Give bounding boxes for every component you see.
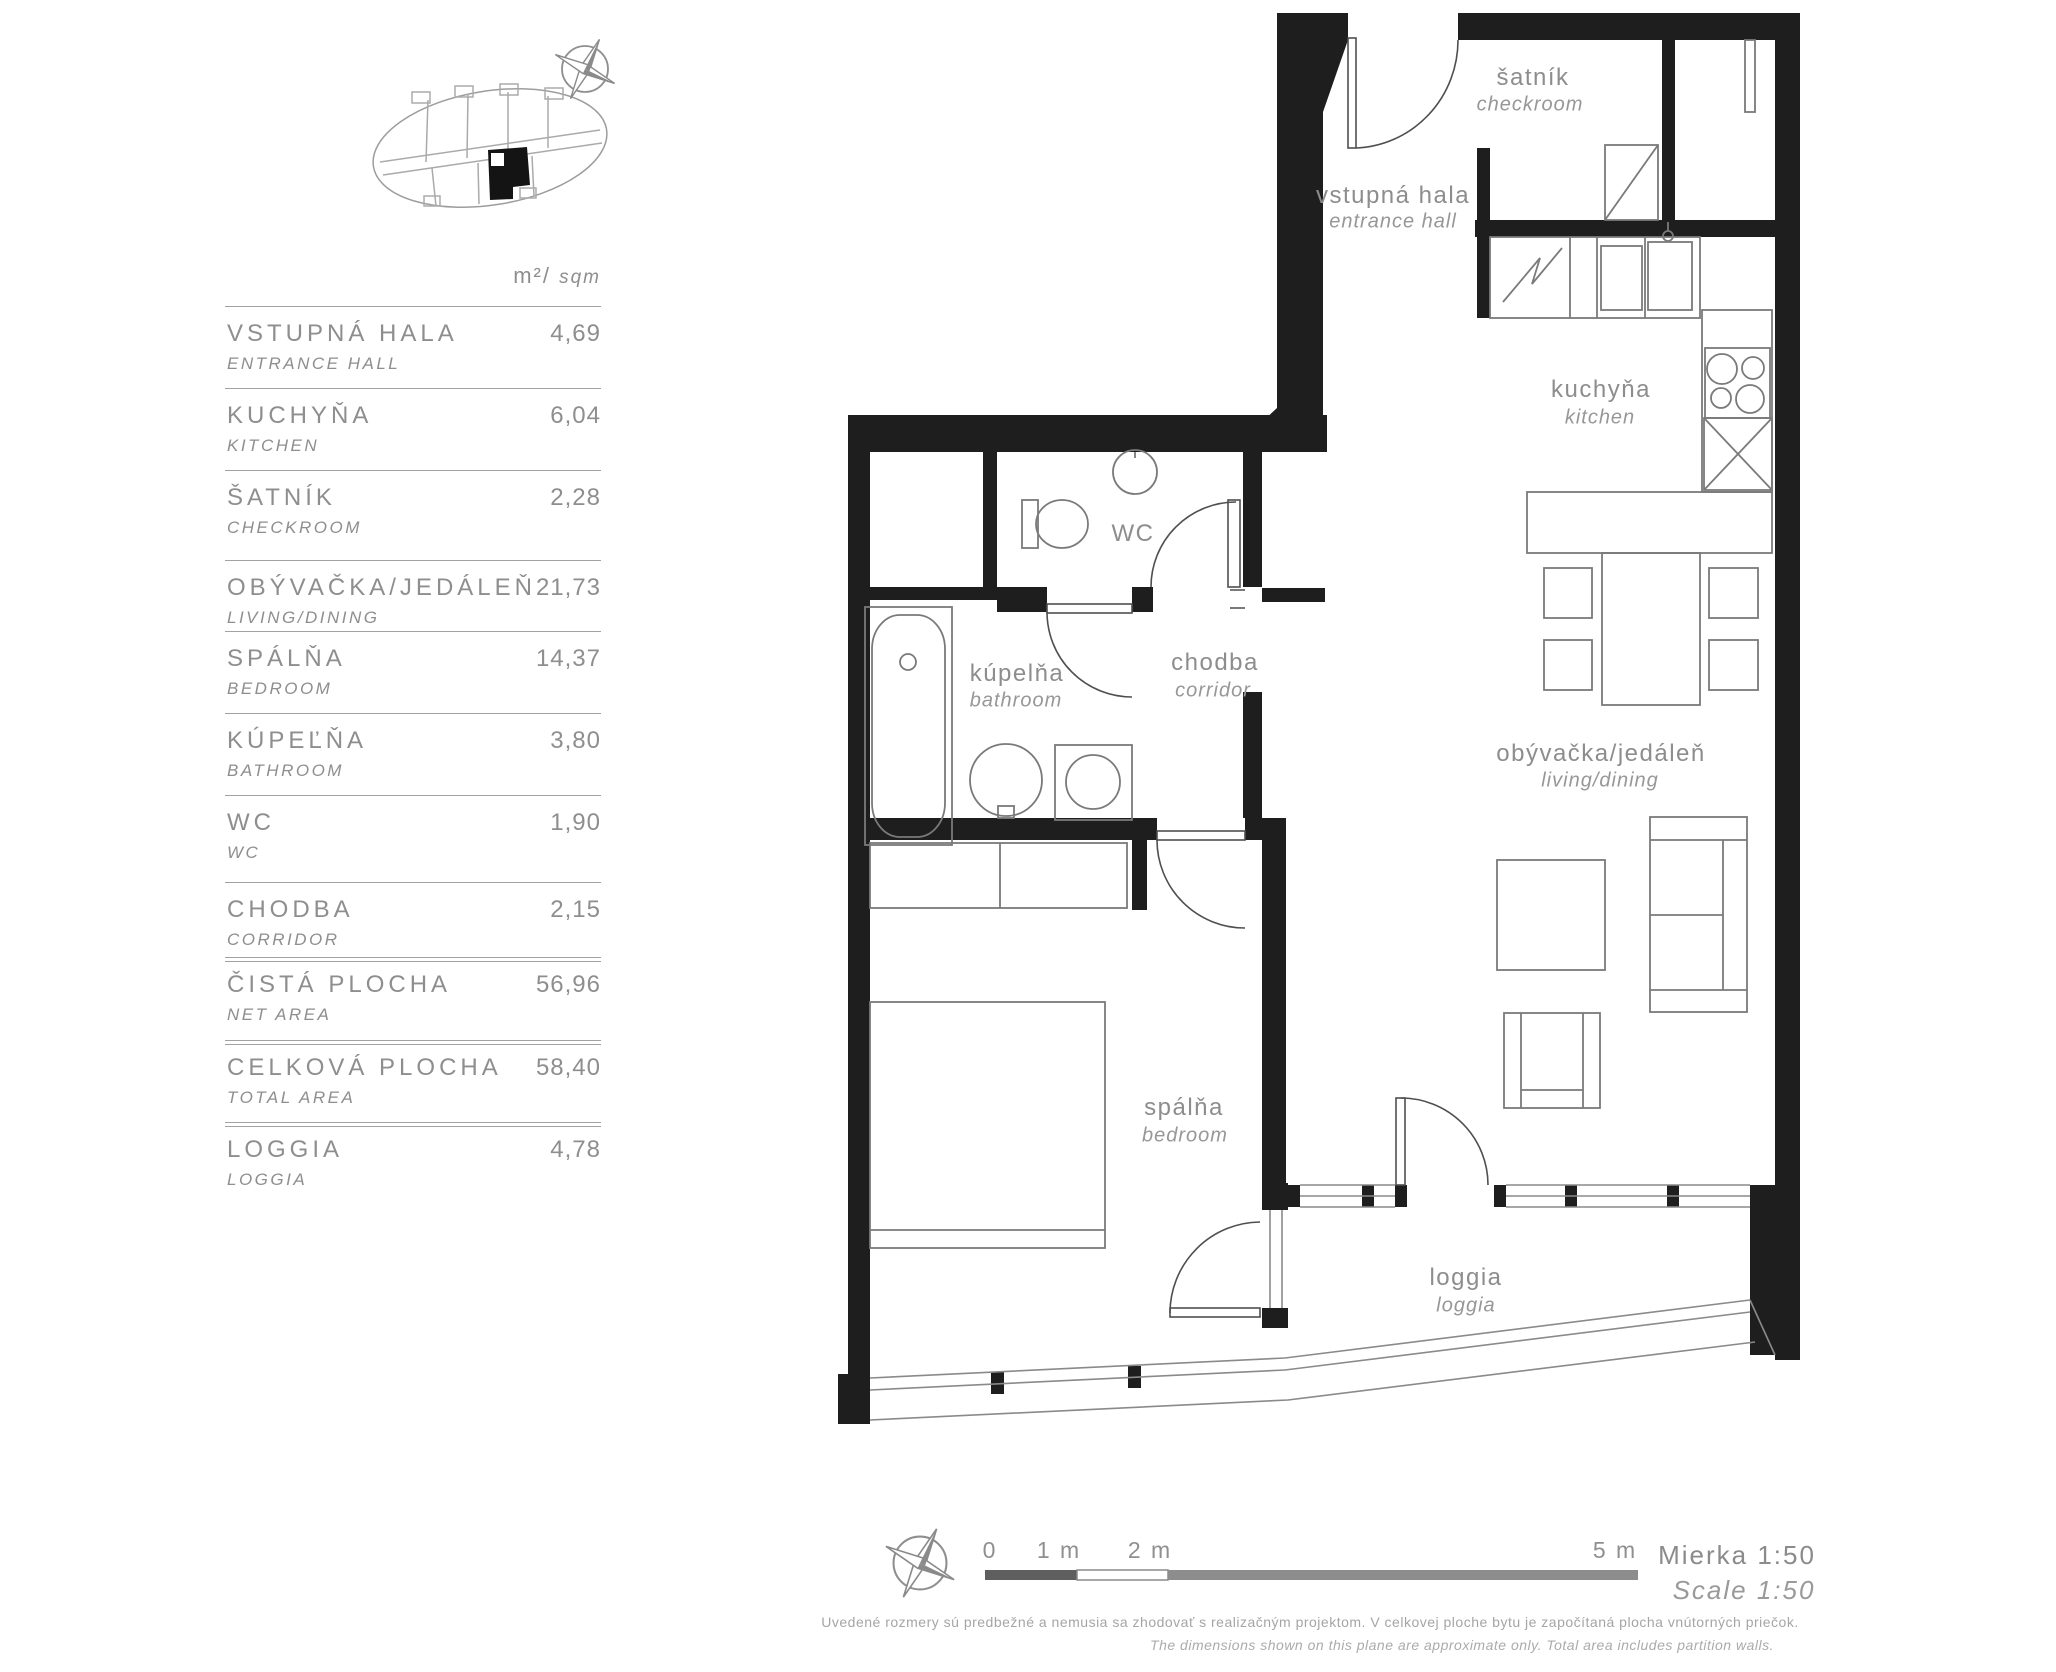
- room-label-loggia: loggia: [1429, 1264, 1502, 1292]
- bed: [870, 1002, 1105, 1248]
- scale-tick-5m: 5 m: [1593, 1537, 1637, 1564]
- legend-row-spalna: SPÁLŇA 14,37 BEDROOM: [225, 631, 601, 713]
- row-subtitle: CORRIDOR: [227, 930, 340, 950]
- bedroom-wardrobe: [870, 843, 1127, 908]
- wc-door-swing: [1151, 502, 1236, 587]
- row-value: 4,78: [550, 1136, 601, 1164]
- dining-table: [1602, 553, 1700, 705]
- row-title: SPÁLŇA: [227, 645, 346, 673]
- row-title: WC: [227, 809, 275, 837]
- row-value: 58,40: [536, 1054, 601, 1082]
- row-subtitle: CHECKROOM: [227, 518, 362, 538]
- bedroom-door-leaf: [1157, 831, 1245, 840]
- legend-row-cista-plocha: ČISTÁ PLOCHA 56,96 NET AREA: [225, 957, 601, 1040]
- fridge-symbol: [1503, 248, 1562, 302]
- key-plan: [365, 73, 616, 223]
- scale-label-en: Scale 1:50: [1673, 1575, 1816, 1606]
- room-label-kupelna: kúpelňa: [970, 660, 1065, 688]
- kitchen-counter: [1490, 237, 1700, 318]
- room-label-chodba: chodba: [1171, 649, 1259, 677]
- bedroom-loggia-door-swing: [1170, 1222, 1260, 1313]
- floorplan-page: m²/ sqm VSTUPNÁ HALA 4,69 ENTRANCE HALL …: [0, 0, 2056, 1672]
- room-sublabel-loggia: loggia: [1436, 1295, 1495, 1318]
- legend-row-kuchyna: KUCHYŇA 6,04 KITCHEN: [225, 388, 601, 470]
- coffee-table: [1497, 860, 1605, 970]
- row-subtitle: WC: [227, 843, 260, 863]
- windows: [870, 1185, 1775, 1420]
- legend-unit-header: m²/ sqm: [513, 263, 601, 289]
- row-value: 2,15: [550, 896, 601, 924]
- row-subtitle: BATHROOM: [227, 761, 344, 781]
- unit-m2: m²/: [513, 263, 551, 288]
- chair: [1544, 640, 1592, 690]
- kitchen-cabinet: [1601, 246, 1642, 310]
- legend-row-chodba: CHODBA 2,15 CORRIDOR: [225, 882, 601, 957]
- entrance-door-swing: [1356, 40, 1458, 148]
- chair: [1544, 568, 1592, 618]
- duct: [1745, 40, 1755, 112]
- living-loggia-door-swing: [1401, 1098, 1488, 1185]
- row-title: KÚPEĽŇA: [227, 727, 367, 755]
- row-value: 21,73: [536, 574, 601, 602]
- row-title: OBÝVAČKA/JEDÁLEŇ: [227, 574, 536, 602]
- toilet-bowl: [1036, 500, 1088, 548]
- row-title: ČISTÁ PLOCHA: [227, 971, 451, 999]
- wc-door-leaf: [1228, 500, 1240, 587]
- row-value: 1,90: [550, 809, 601, 837]
- legend-row-kupelna: KÚPEĽŇA 3,80 BATHROOM: [225, 713, 601, 795]
- legend-row-vstupna-hala: VSTUPNÁ HALA 4,69 ENTRANCE HALL: [225, 306, 601, 388]
- row-subtitle: LIVING/DINING: [227, 608, 379, 628]
- room-sublabel-spalna: bedroom: [1142, 1125, 1228, 1148]
- row-title: ŠATNÍK: [227, 484, 336, 512]
- disclaimer-en: The dimensions shown on this plane are a…: [1150, 1637, 1774, 1653]
- legend-row-celkova-plocha: CELKOVÁ PLOCHA 58,40 TOTAL AREA: [225, 1040, 601, 1122]
- scale-bar-graphic: [985, 1570, 1638, 1580]
- room-sublabel-kuchyna: kitchen: [1565, 407, 1635, 430]
- row-title: LOGGIA: [227, 1136, 343, 1164]
- room-label-vstupna-hala: vstupná hala: [1316, 182, 1470, 210]
- bathtub: [865, 607, 952, 845]
- scale-tick-0: 0: [983, 1537, 998, 1564]
- room-sublabel-obyvacka: living/dining: [1541, 770, 1659, 793]
- bathroom-door-leaf: [1047, 604, 1132, 613]
- room-label-kuchyna: kuchyňa: [1551, 376, 1651, 404]
- row-title: CELKOVÁ PLOCHA: [227, 1054, 502, 1082]
- room-label-satnik: šatník: [1496, 64, 1569, 92]
- room-sublabel-vstupna-hala: entrance hall: [1329, 211, 1457, 234]
- bedroom-loggia-door-leaf: [1170, 1308, 1260, 1317]
- row-value: 3,80: [550, 727, 601, 755]
- scale-tick-2m: 2 m: [1128, 1537, 1172, 1564]
- row-title: KUCHYŇA: [227, 402, 372, 430]
- walls: [838, 13, 1800, 1424]
- row-subtitle: TOTAL AREA: [227, 1088, 355, 1108]
- entrance-door-leaf: [1348, 38, 1356, 148]
- living-loggia-door-leaf: [1396, 1098, 1405, 1185]
- scale-tick-1m: 1 m: [1037, 1537, 1081, 1564]
- disclaimer-sk: Uvedené rozmery sú predbežné a nemusia s…: [821, 1614, 1798, 1630]
- row-value: 6,04: [550, 402, 601, 430]
- legend-row-loggia: LOGGIA 4,78 LOGGIA: [225, 1122, 601, 1204]
- row-subtitle: NET AREA: [227, 1005, 331, 1025]
- room-label-wc: WC: [1112, 520, 1155, 548]
- row-subtitle: KITCHEN: [227, 436, 319, 456]
- legend-row-obyvacka: OBÝVAČKA/JEDÁLEŇ 21,73 LIVING/DINING: [225, 560, 601, 631]
- row-subtitle: LOGGIA: [227, 1170, 307, 1190]
- row-title: CHODBA: [227, 896, 354, 924]
- room-sublabel-chodba: corridor: [1175, 680, 1251, 703]
- row-title: VSTUPNÁ HALA: [227, 320, 458, 348]
- kitchen-sink: [1648, 242, 1692, 310]
- row-subtitle: ENTRANCE HALL: [227, 354, 400, 374]
- room-sublabel-satnik: checkroom: [1477, 94, 1584, 117]
- row-value: 2,28: [550, 484, 601, 512]
- kitchen-island: [1527, 492, 1772, 553]
- room-label-obyvacka: obývačka/jedáleň: [1496, 740, 1705, 768]
- row-subtitle: BEDROOM: [227, 679, 332, 699]
- unit-sqm: sqm: [559, 267, 601, 288]
- chair: [1709, 568, 1758, 618]
- room-label-spalna: spálňa: [1144, 1094, 1224, 1122]
- legend-row-wc: WC 1,90 WC: [225, 795, 601, 882]
- legend-row-satnik: ŠATNÍK 2,28 CHECKROOM: [225, 470, 601, 560]
- row-value: 14,37: [536, 645, 601, 673]
- chair: [1709, 640, 1758, 690]
- bedroom-door-swing: [1157, 840, 1245, 928]
- scale-label-sk: Mierka 1:50: [1658, 1540, 1816, 1571]
- room-sublabel-kupelna: bathroom: [970, 690, 1063, 713]
- armchair: [1504, 1013, 1600, 1108]
- row-value: 56,96: [536, 971, 601, 999]
- row-value: 4,69: [550, 320, 601, 348]
